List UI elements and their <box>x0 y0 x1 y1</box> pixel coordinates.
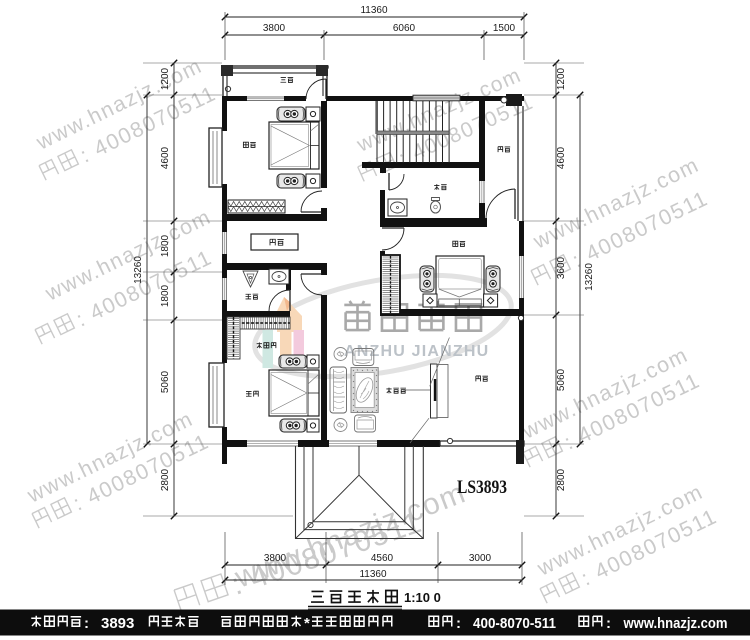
svg-text::: : <box>456 615 461 632</box>
svg-text:LS3893: LS3893 <box>457 477 507 498</box>
svg-text:ANZHU JIANZHU: ANZHU JIANZHU <box>344 343 489 360</box>
svg-text:1:10 0: 1:10 0 <box>404 590 441 605</box>
svg-text:4560: 4560 <box>371 553 394 564</box>
svg-text:3000: 3000 <box>469 553 492 564</box>
svg-text:1500: 1500 <box>493 23 516 34</box>
svg-text:1800: 1800 <box>160 284 171 307</box>
svg-text:400-8070-511: 400-8070-511 <box>473 616 556 632</box>
svg-text:*: * <box>304 615 310 632</box>
svg-text:3600: 3600 <box>556 256 567 279</box>
svg-text:11360: 11360 <box>360 5 388 16</box>
svg-text::: : <box>606 615 611 632</box>
svg-text:6060: 6060 <box>393 23 416 34</box>
svg-text:11360: 11360 <box>359 569 387 580</box>
svg-text:4600: 4600 <box>160 146 171 169</box>
svg-text:1200: 1200 <box>556 67 567 90</box>
svg-text:2800: 2800 <box>556 468 567 491</box>
svg-text:13260: 13260 <box>133 256 144 284</box>
svg-text:1800: 1800 <box>160 234 171 257</box>
svg-text:3893: 3893 <box>101 615 134 632</box>
svg-text:5060: 5060 <box>556 368 567 391</box>
svg-text::: : <box>84 615 89 632</box>
svg-text:4600: 4600 <box>556 146 567 169</box>
svg-text:3800: 3800 <box>264 553 287 564</box>
svg-text:3800: 3800 <box>263 23 286 34</box>
svg-text:5060: 5060 <box>160 370 171 393</box>
svg-text:1200: 1200 <box>160 67 171 90</box>
svg-text:www.hnazjz.com: www.hnazjz.com <box>623 616 728 632</box>
svg-text:13260: 13260 <box>584 263 595 291</box>
svg-text:2800: 2800 <box>160 468 171 491</box>
